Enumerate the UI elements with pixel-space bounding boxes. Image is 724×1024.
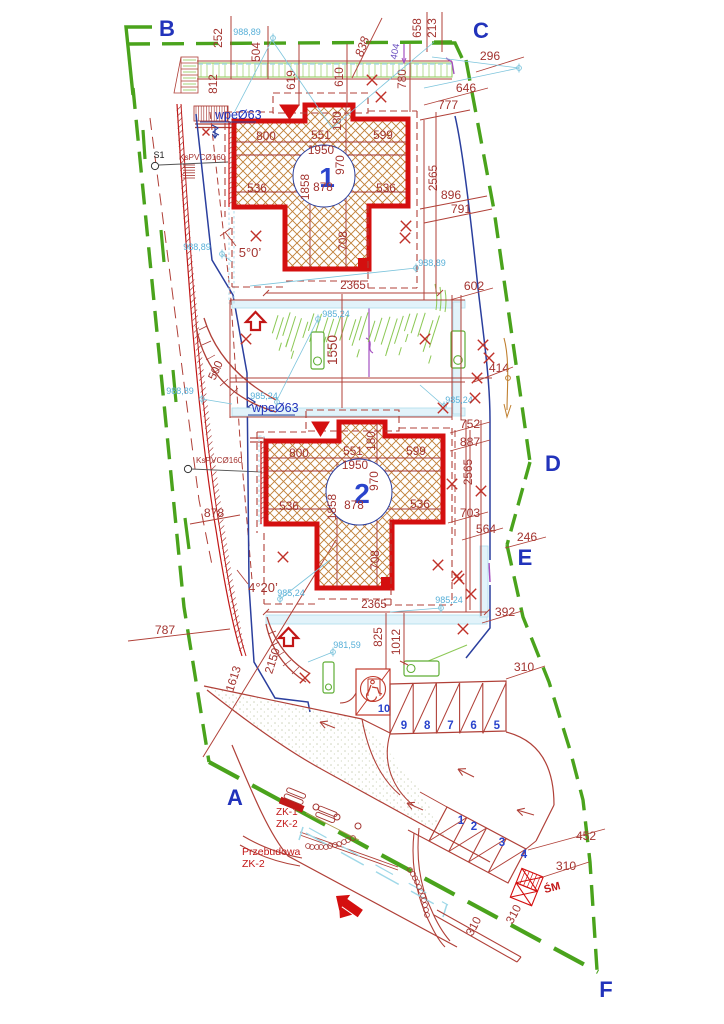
svg-text:646: 646 (456, 81, 477, 95)
svg-text:878: 878 (204, 506, 225, 520)
svg-text:C: C (473, 18, 489, 43)
svg-text:619: 619 (284, 70, 298, 90)
svg-text:2565: 2565 (461, 458, 475, 485)
svg-text:564: 564 (476, 522, 497, 536)
svg-text:310: 310 (556, 859, 577, 873)
svg-text:878: 878 (313, 180, 333, 194)
svg-text:536: 536 (247, 181, 267, 195)
svg-text:F: F (599, 977, 612, 1002)
svg-text:252: 252 (211, 28, 225, 48)
svg-text:551: 551 (343, 444, 363, 458)
svg-text:551: 551 (311, 128, 331, 142)
svg-text:985,24: 985,24 (322, 309, 350, 319)
svg-text:5: 5 (494, 720, 501, 732)
svg-text:A: A (227, 785, 243, 810)
svg-text:988,89: 988,89 (233, 27, 261, 37)
svg-text:4°20’: 4°20’ (248, 580, 278, 595)
svg-text:5°0’: 5°0’ (239, 245, 262, 260)
svg-text:985,24: 985,24 (445, 395, 473, 405)
svg-text:2365: 2365 (361, 599, 387, 611)
svg-text:S1: S1 (153, 150, 164, 160)
svg-text:8: 8 (424, 720, 431, 732)
svg-text:708: 708 (368, 550, 382, 570)
svg-text:KsPVCØ160: KsPVCØ160 (179, 153, 226, 162)
svg-text:599: 599 (406, 444, 426, 458)
svg-text:985,24: 985,24 (435, 595, 463, 605)
svg-text:6: 6 (470, 720, 476, 732)
svg-text:213: 213 (425, 18, 439, 38)
svg-text:392: 392 (495, 605, 516, 619)
svg-text:D: D (545, 451, 561, 476)
svg-text:ZK-2: ZK-2 (242, 858, 265, 870)
svg-text:752: 752 (460, 417, 481, 431)
svg-text:504: 504 (249, 42, 263, 62)
svg-text:E: E (518, 545, 533, 570)
svg-text:B: B (159, 16, 175, 41)
svg-text:7: 7 (447, 720, 453, 732)
svg-text:708: 708 (336, 231, 350, 251)
svg-text:4: 4 (521, 849, 528, 861)
svg-text:988,89: 988,89 (166, 386, 194, 396)
svg-text:988,89: 988,89 (183, 242, 211, 252)
svg-text:ZK-2: ZK-2 (276, 819, 298, 830)
svg-text:1950: 1950 (308, 143, 335, 157)
svg-text:536: 536 (376, 181, 396, 195)
svg-text:1550: 1550 (325, 335, 340, 365)
svg-text:970: 970 (367, 471, 381, 491)
svg-text:3: 3 (499, 837, 505, 849)
svg-text:180: 180 (364, 431, 378, 451)
svg-text:1012: 1012 (389, 629, 403, 655)
svg-text:825: 825 (371, 627, 385, 647)
svg-text:310: 310 (514, 660, 535, 674)
svg-text:658: 658 (410, 18, 424, 38)
svg-text:878: 878 (344, 498, 364, 512)
svg-text:2565: 2565 (426, 164, 440, 191)
svg-text:Przebudowa: Przebudowa (242, 846, 301, 858)
svg-text:10: 10 (378, 703, 390, 715)
svg-text:2: 2 (471, 821, 477, 833)
svg-text:KsPVCØ160: KsPVCØ160 (196, 456, 243, 465)
svg-text:ZK-1: ZK-1 (276, 807, 298, 818)
svg-text:800: 800 (289, 446, 309, 460)
svg-text:wpeØ63: wpeØ63 (214, 108, 262, 122)
svg-text:777: 777 (438, 98, 459, 112)
svg-text:1858: 1858 (325, 493, 339, 520)
svg-text:9: 9 (401, 720, 407, 732)
svg-text:1950: 1950 (342, 458, 369, 472)
svg-text:1858: 1858 (298, 173, 312, 200)
svg-text:800: 800 (256, 129, 276, 143)
svg-text:610: 610 (332, 67, 346, 87)
svg-text:536: 536 (279, 499, 299, 513)
svg-text:981,59: 981,59 (333, 640, 361, 650)
svg-text:414: 414 (489, 361, 510, 375)
svg-text:536: 536 (410, 497, 430, 511)
svg-text:703: 703 (460, 506, 481, 520)
svg-text:296: 296 (480, 49, 501, 63)
svg-text:970: 970 (333, 155, 347, 175)
svg-text:1: 1 (458, 815, 465, 827)
svg-text:812: 812 (206, 74, 220, 94)
svg-text:988,89: 988,89 (418, 258, 446, 268)
svg-text:780: 780 (395, 69, 409, 89)
svg-text:985,24: 985,24 (250, 391, 278, 401)
svg-text:599: 599 (373, 128, 393, 142)
svg-text:896: 896 (441, 188, 462, 202)
svg-text:2365: 2365 (340, 280, 366, 292)
svg-text:787: 787 (155, 623, 176, 637)
